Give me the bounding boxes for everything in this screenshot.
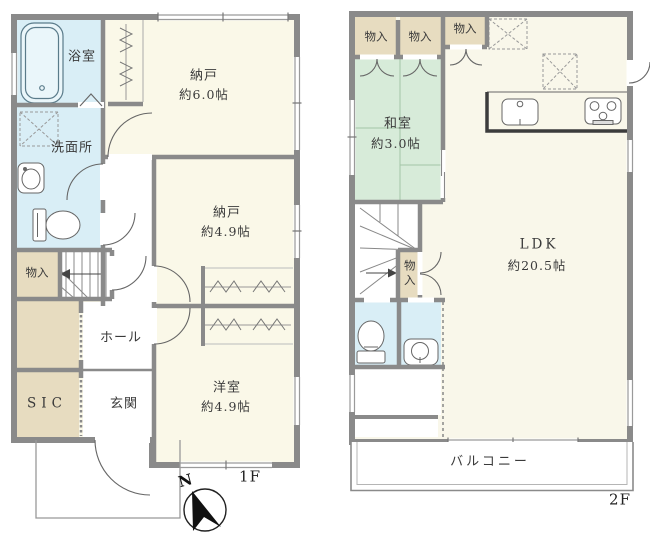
room-label-sic: SIC xyxy=(27,397,67,411)
toilet-1f-icon xyxy=(33,209,80,241)
compass-icon xyxy=(184,489,226,531)
room-label-storage6: 納戸 xyxy=(190,70,218,83)
room-label-closet2f-1: 物入 xyxy=(365,31,388,43)
bathtub-icon xyxy=(21,23,63,103)
washbasin-1f-icon xyxy=(18,163,44,193)
floorplan-page: 浴室 納戸 約6.0帖 洗面所 納戸 約4.9帖 物入 ホール SIC 玄関 洋… xyxy=(0,0,650,542)
toilet-2f-icon xyxy=(357,321,385,363)
room-size-western: 約4.9帖 xyxy=(201,401,251,414)
room-label-ldk: LDK xyxy=(520,238,559,252)
room-size-japanese: 約3.0帖 xyxy=(371,138,421,151)
room-label-hall: ホール xyxy=(100,332,142,345)
room-size-storage6: 約6.0帖 xyxy=(179,89,229,102)
floor2-room-fills xyxy=(352,14,630,442)
room-size-storage49: 約4.9帖 xyxy=(201,226,251,239)
room-label-closet2f-2: 物入 xyxy=(409,31,432,43)
floor1-label: 1F xyxy=(239,470,261,485)
room-size-ldk: 約20.5帖 xyxy=(508,260,567,273)
room-label-closet2f-3: 物入 xyxy=(454,23,477,35)
floor2-label: 2F xyxy=(609,493,631,508)
room-label-bath: 浴室 xyxy=(68,51,96,64)
room-label-closet2f-4: 物入 xyxy=(403,260,415,289)
room-label-storage49: 納戸 xyxy=(213,207,241,220)
kitchen-sink-icon xyxy=(502,99,538,125)
room-label-japanese: 和室 xyxy=(384,118,412,131)
room-label-western: 洋室 xyxy=(213,382,241,395)
room-label-closet-1f: 物入 xyxy=(26,267,49,279)
room-label-washroom: 洗面所 xyxy=(51,142,93,155)
stove-icon xyxy=(585,98,621,125)
room-label-entrance: 玄関 xyxy=(110,398,138,411)
washbasin-2f-icon xyxy=(404,339,438,365)
room-label-balcony: バルコニー xyxy=(450,456,530,469)
